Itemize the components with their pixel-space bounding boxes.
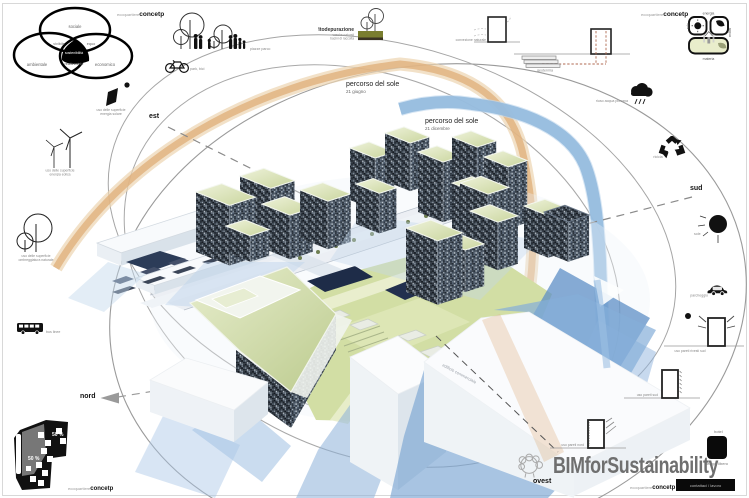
svg-text:uso pareti sud: uso pareti sud <box>637 393 658 397</box>
svg-text:ombreggiatura naturale: ombreggiatura naturale <box>18 258 53 262</box>
svg-text:sostenibilità: sostenibilità <box>65 51 83 55</box>
svg-text:parcheggio: parcheggio <box>690 293 708 297</box>
svg-text:vivibile: vivibile <box>53 42 64 46</box>
svg-text:50 %: 50 % <box>52 432 64 438</box>
svg-text:energia eolica: energia eolica <box>49 173 70 177</box>
svg-text:park, bici: park, bici <box>190 67 205 71</box>
svg-text:convezione naturale: convezione naturale <box>456 38 486 42</box>
svg-text:piazze parco: piazze parco <box>250 47 270 51</box>
svg-text:geotermia: geotermia <box>537 69 553 73</box>
svg-text:energia: energia <box>703 12 715 16</box>
svg-text:bacini di raccolta: bacini di raccolta <box>330 37 354 41</box>
svg-text:acqua: acqua <box>728 28 732 37</box>
svg-text:bus linee: bus linee <box>46 330 60 334</box>
svg-text:sole: sole <box>694 232 701 236</box>
svg-text:equo: equo <box>87 42 95 46</box>
svg-text:realizzabile: realizzabile <box>65 62 84 66</box>
svg-text:sole: sole <box>686 23 690 29</box>
svg-text:50 %: 50 % <box>28 456 40 462</box>
svg-text:economico: economico <box>95 62 116 67</box>
svg-text:ricicla: ricicla <box>653 155 662 159</box>
svg-text:uso pareti nord: uso pareti nord <box>561 443 584 447</box>
svg-text:ambientale: ambientale <box>27 62 48 67</box>
svg-text:sociale: sociale <box>68 24 82 29</box>
svg-text:materia: materia <box>703 57 715 61</box>
svg-text:energia solare: energia solare <box>100 112 122 116</box>
svg-text:uso pareti rivesti sud: uso pareti rivesti sud <box>674 349 705 353</box>
svg-text:riuso acqua piovana: riuso acqua piovana <box>596 99 628 103</box>
